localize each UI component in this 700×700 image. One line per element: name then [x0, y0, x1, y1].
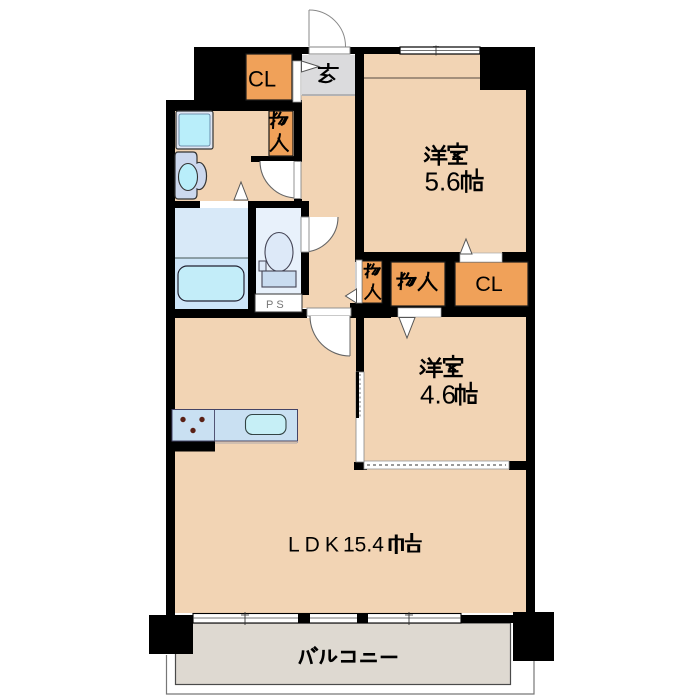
svg-text:5.6: 5.6 — [425, 167, 461, 197]
svg-text:4.6: 4.6 — [420, 380, 456, 410]
svg-text:CL: CL — [248, 67, 276, 92]
svg-text:PS: PS — [266, 299, 287, 311]
svg-text:LDK: LDK — [288, 534, 344, 557]
svg-text:CL: CL — [475, 272, 503, 296]
svg-text:15.4: 15.4 — [343, 534, 384, 557]
